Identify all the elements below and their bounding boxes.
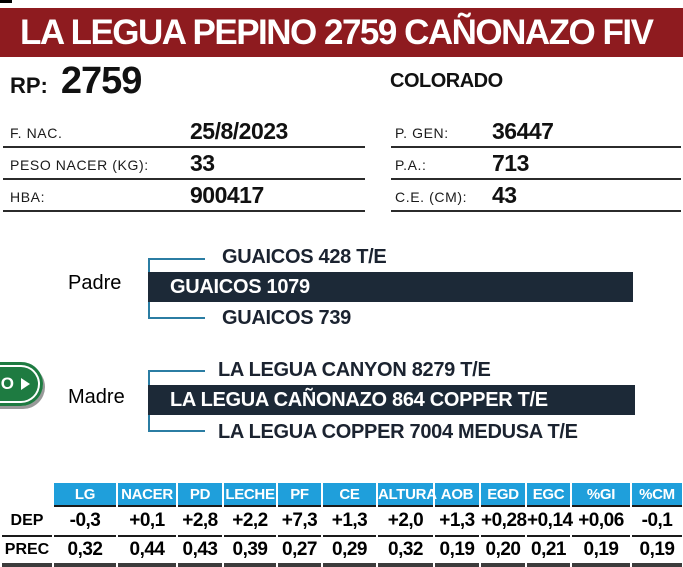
epd-column-header: EGD bbox=[481, 483, 525, 507]
epd-cell: +0,06 bbox=[572, 507, 630, 537]
epd-column-header: ALTURA bbox=[378, 483, 433, 507]
ce-label: C.E. (CM): bbox=[395, 189, 467, 205]
padre-name-bar: GUAICOS 1079 bbox=[148, 272, 633, 302]
info-column-right: P. GEN: 36447 P.A.: 713 C.E. (CM): 43 bbox=[391, 116, 681, 212]
epd-cell: +1,3 bbox=[435, 507, 479, 537]
info-row-ce: C.E. (CM): 43 bbox=[391, 180, 681, 212]
epd-cell: 0,21 bbox=[527, 537, 570, 567]
crop-mark bbox=[0, 0, 12, 3]
epd-table: LGNACERPDLECHEPFCEALTURAAOBEGDEGC%GI%CMD… bbox=[0, 483, 683, 567]
epd-column-header: EGC bbox=[527, 483, 570, 507]
pgen-label: P. GEN: bbox=[395, 125, 449, 141]
madre-name-bar: LA LEGUA CAÑONAZO 864 COPPER T/E bbox=[148, 385, 635, 415]
catalog-page: LA LEGUA PEPINO 2759 CAÑONAZO FIV RP: 27… bbox=[0, 0, 683, 567]
epd-cell: -0,3 bbox=[54, 507, 116, 537]
info-row-hba: HBA: 900417 bbox=[3, 180, 365, 212]
epd-row-prec: PREC0,320,440,430,390,270,290,320,190,20… bbox=[2, 537, 682, 567]
padre-name: GUAICOS 1079 bbox=[170, 276, 310, 299]
title-banner: LA LEGUA PEPINO 2759 CAÑONAZO FIV bbox=[0, 8, 683, 57]
epd-row-label: PREC bbox=[2, 537, 52, 567]
padre-dam-name: GUAICOS 739 bbox=[222, 307, 351, 330]
epd-cell: 0,39 bbox=[224, 537, 276, 567]
play-icon bbox=[21, 378, 30, 390]
epd-column-header: %GI bbox=[572, 483, 630, 507]
hba-label: HBA: bbox=[10, 189, 45, 205]
epd-column-header: LECHE bbox=[224, 483, 276, 507]
info-row-pa: P.A.: 713 bbox=[391, 148, 681, 180]
padre-label: Padre bbox=[68, 272, 121, 295]
epd-cell: +7,3 bbox=[278, 507, 321, 537]
fnac-label: F. NAC. bbox=[10, 125, 62, 141]
fnac-value: 25/8/2023 bbox=[190, 118, 288, 145]
madre-name: LA LEGUA CAÑONAZO 864 COPPER T/E bbox=[170, 389, 548, 412]
epd-cell: 0,19 bbox=[435, 537, 479, 567]
page-title: LA LEGUA PEPINO 2759 CAÑONAZO FIV bbox=[0, 13, 652, 53]
epd-cell: +0,1 bbox=[118, 507, 176, 537]
epd-cell: 0,19 bbox=[572, 537, 630, 567]
epd-column-header: CE bbox=[323, 483, 376, 507]
epd-corner-cell bbox=[2, 483, 52, 507]
video-button[interactable]: O bbox=[0, 362, 43, 406]
epd-cell: +2,0 bbox=[378, 507, 433, 537]
epd-cell: -0,1 bbox=[632, 507, 682, 537]
epd-cell: 0,29 bbox=[323, 537, 376, 567]
epd-cell: 0,20 bbox=[481, 537, 525, 567]
coat-color-label: COLORADO bbox=[390, 70, 503, 93]
ce-value: 43 bbox=[492, 182, 517, 209]
hba-value: 900417 bbox=[190, 182, 264, 209]
epd-cell: 0,19 bbox=[632, 537, 682, 567]
peso-nacer-value: 33 bbox=[190, 150, 215, 177]
epd-cell: +1,3 bbox=[323, 507, 376, 537]
rp-label: RP: bbox=[10, 73, 48, 99]
epd-column-header: LG bbox=[54, 483, 116, 507]
epd-column-header: PF bbox=[278, 483, 321, 507]
epd-cell: +0,14 bbox=[527, 507, 570, 537]
info-row-fnac: F. NAC. 25/8/2023 bbox=[3, 116, 365, 148]
madre-sire-name: LA LEGUA CANYON 8279 T/E bbox=[218, 359, 490, 382]
info-column-left: F. NAC. 25/8/2023 PESO NACER (KG): 33 HB… bbox=[3, 116, 365, 212]
epd-cell: +2,8 bbox=[178, 507, 222, 537]
epd-cell: 0,32 bbox=[54, 537, 116, 567]
rp-block: RP: 2759 bbox=[10, 60, 141, 103]
epd-column-header: PD bbox=[178, 483, 222, 507]
epd-cell: +0,28 bbox=[481, 507, 525, 537]
epd-cell: +2,2 bbox=[224, 507, 276, 537]
epd-cell: 0,27 bbox=[278, 537, 321, 567]
epd-row-dep: DEP-0,3+0,1+2,8+2,2+7,3+1,3+2,0+1,3+0,28… bbox=[2, 507, 682, 537]
madre-dam-name: LA LEGUA COPPER 7004 MEDUSA T/E bbox=[218, 421, 578, 444]
madre-label: Madre bbox=[68, 386, 125, 409]
pgen-value: 36447 bbox=[492, 118, 553, 145]
peso-nacer-label: PESO NACER (KG): bbox=[10, 157, 149, 173]
info-row-pgen: P. GEN: 36447 bbox=[391, 116, 681, 148]
epd-column-header: AOB bbox=[435, 483, 479, 507]
epd-column-header: NACER bbox=[118, 483, 176, 507]
info-row-peso-nacer: PESO NACER (KG): 33 bbox=[3, 148, 365, 180]
epd-cell: 0,44 bbox=[118, 537, 176, 567]
video-button-label: O bbox=[1, 374, 14, 394]
epd-cell: 0,32 bbox=[378, 537, 433, 567]
epd-row-label: DEP bbox=[2, 507, 52, 537]
rp-value: 2759 bbox=[61, 60, 142, 103]
pa-label: P.A.: bbox=[395, 157, 427, 173]
padre-sire-name: GUAICOS 428 T/E bbox=[222, 246, 386, 269]
epd-cell: 0,43 bbox=[178, 537, 222, 567]
pa-value: 713 bbox=[492, 150, 529, 177]
epd-column-header: %CM bbox=[632, 483, 682, 507]
